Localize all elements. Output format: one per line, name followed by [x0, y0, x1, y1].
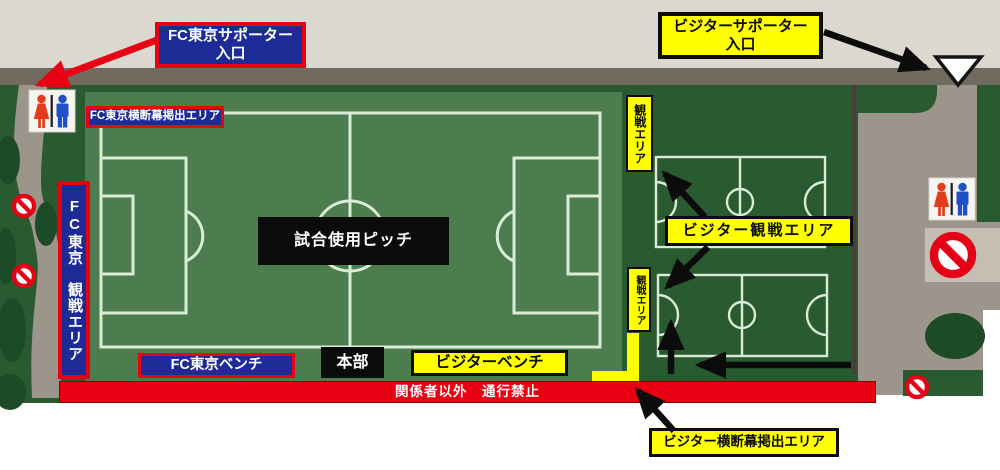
- visitor-banner-area-label: ビジター横断幕掲出エリア: [649, 428, 839, 457]
- fc-supporter-entrance-label: FC東京サポーター 入口: [155, 22, 306, 68]
- top-fence-bar: [0, 68, 1000, 85]
- background-top: [0, 0, 1000, 70]
- label-line: ビジターサポーター: [673, 18, 807, 36]
- headquarters-label: 本部: [321, 347, 384, 378]
- visitor-watch-area-label: ビジター観戦エリア: [665, 216, 853, 246]
- right-walkway: [858, 85, 1000, 395]
- visitor-bench-label: ビジターベンチ: [411, 350, 568, 376]
- venue-map: FC東京サポーター 入口 ビジターサポーター 入口 FC東京横断幕掲出エリア F…: [0, 0, 1000, 470]
- background-corner: [983, 310, 1000, 410]
- label-line: FC東京サポーター: [168, 27, 293, 45]
- restricted-passage-bar: 関係者以外 通行禁止: [59, 381, 876, 403]
- fc-bench-label: FC東京ベンチ: [138, 353, 295, 378]
- label-line: 入口: [215, 45, 245, 63]
- match-pitch-label: 試合使用ピッチ: [258, 217, 449, 265]
- watch-area-upper-label: 観戦エリア: [626, 95, 653, 172]
- visitor-supporter-entrance-label: ビジターサポーター 入口: [658, 12, 823, 59]
- watch-area-lower-label: 観戦エリア: [627, 267, 651, 332]
- fc-banner-area-label: FC東京横断幕掲出エリア: [86, 106, 224, 128]
- fc-watch-area-label: FC東京 観戦エリア: [58, 181, 90, 379]
- background-bottom: [0, 403, 1000, 470]
- label-line: 入口: [725, 36, 755, 54]
